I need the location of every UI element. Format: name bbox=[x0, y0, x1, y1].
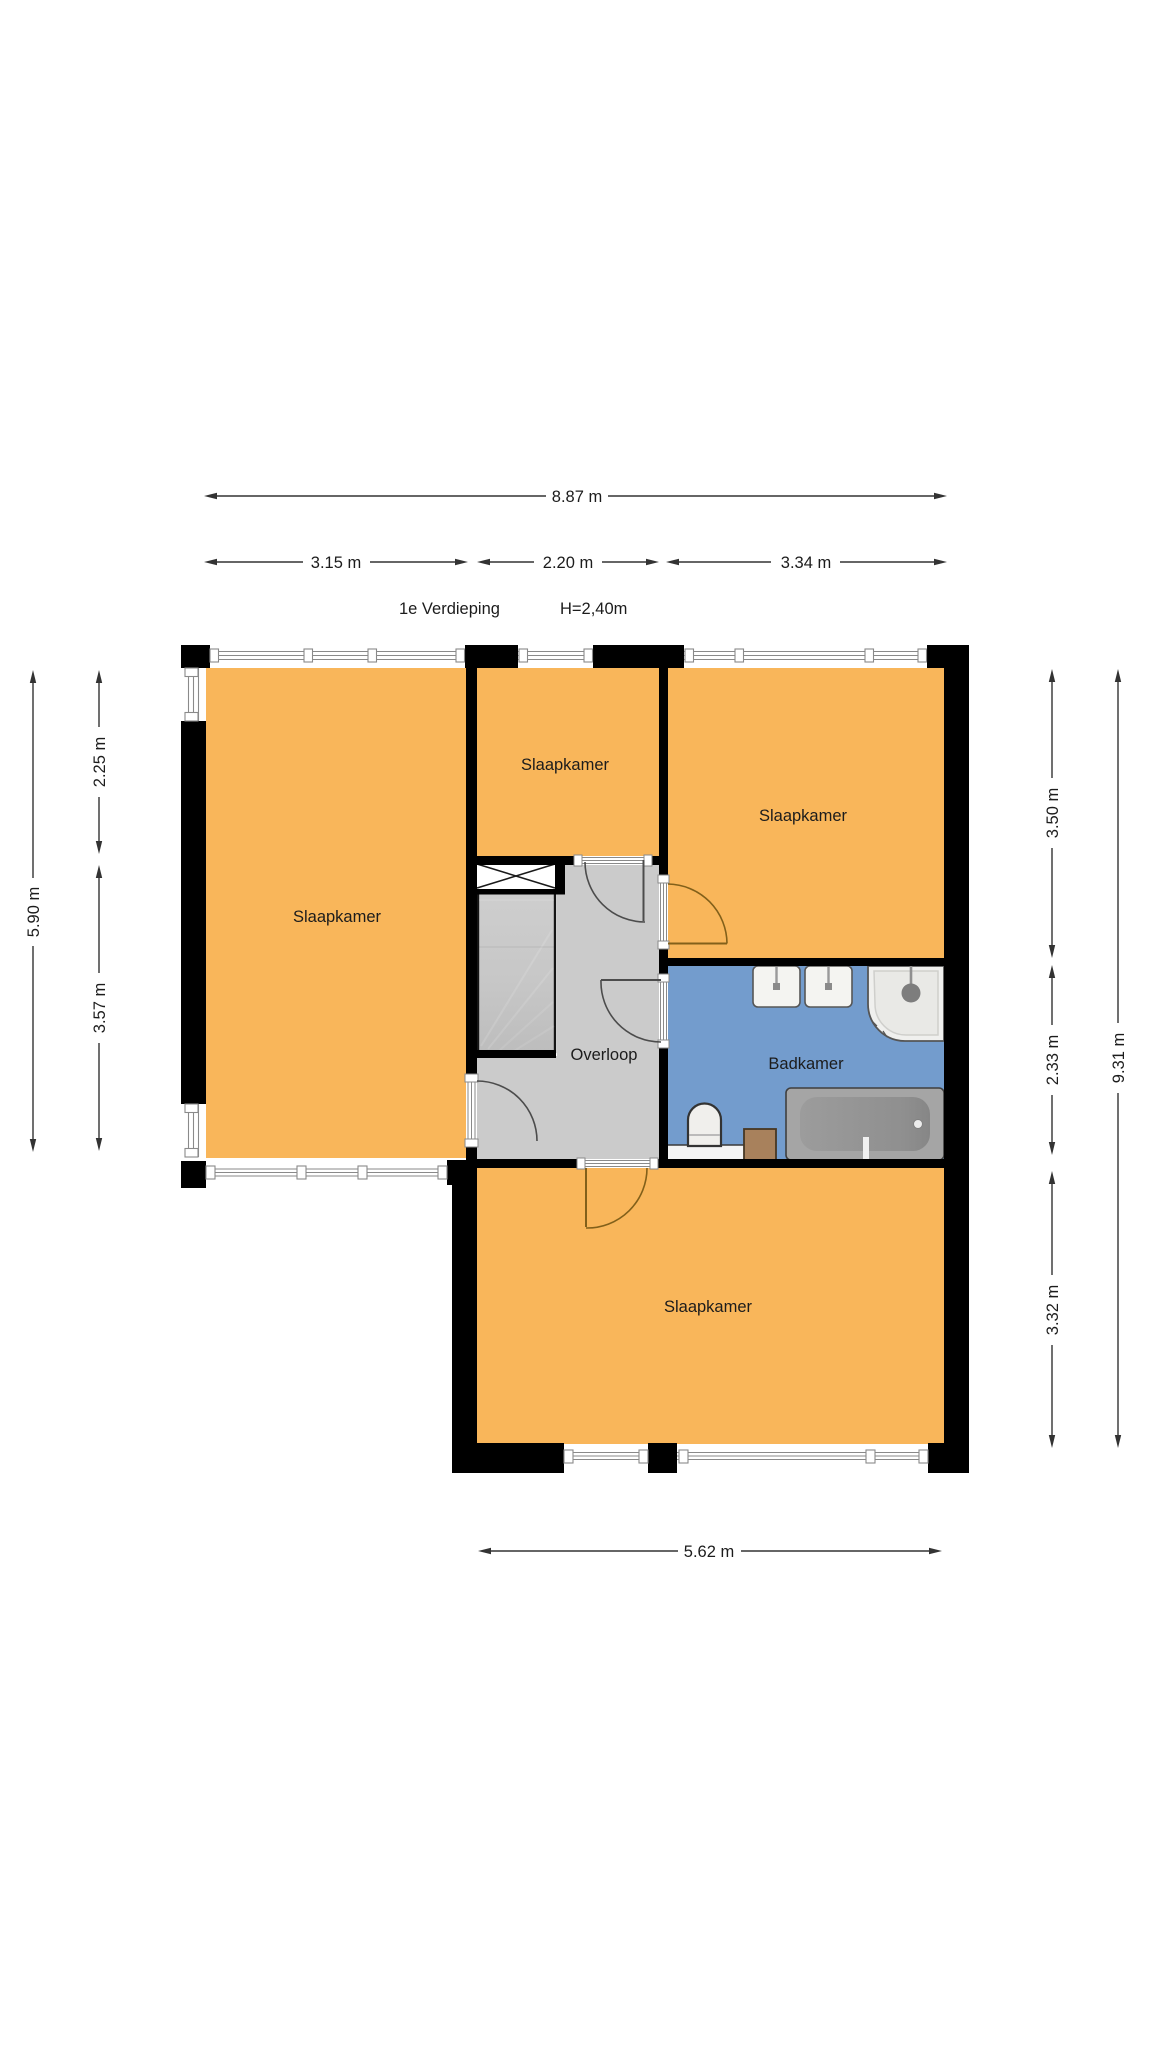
svg-text:3.57 m: 3.57 m bbox=[91, 983, 109, 1033]
svg-text:H=2,40m: H=2,40m bbox=[560, 600, 627, 618]
svg-text:Slaapkamer: Slaapkamer bbox=[759, 807, 848, 825]
svg-text:2.20 m: 2.20 m bbox=[543, 554, 593, 572]
svg-text:9.31 m: 9.31 m bbox=[1110, 1033, 1128, 1083]
svg-text:3.15 m: 3.15 m bbox=[311, 554, 361, 572]
svg-text:3.32 m: 3.32 m bbox=[1044, 1285, 1062, 1335]
svg-text:8.87 m: 8.87 m bbox=[552, 488, 602, 506]
svg-text:3.50 m: 3.50 m bbox=[1044, 788, 1062, 838]
svg-text:2.25 m: 2.25 m bbox=[91, 737, 109, 787]
svg-text:Slaapkamer: Slaapkamer bbox=[521, 756, 610, 774]
svg-text:5.90 m: 5.90 m bbox=[25, 887, 43, 937]
svg-text:2.33 m: 2.33 m bbox=[1044, 1035, 1062, 1085]
svg-text:Slaapkamer: Slaapkamer bbox=[293, 908, 382, 926]
svg-text:Slaapkamer: Slaapkamer bbox=[664, 1298, 753, 1316]
svg-text:5.62 m: 5.62 m bbox=[684, 1543, 734, 1561]
svg-text:Overloop: Overloop bbox=[571, 1046, 638, 1064]
svg-text:1e Verdieping: 1e Verdieping bbox=[399, 600, 500, 618]
svg-text:3.34 m: 3.34 m bbox=[781, 554, 831, 572]
svg-text:Badkamer: Badkamer bbox=[768, 1055, 844, 1073]
